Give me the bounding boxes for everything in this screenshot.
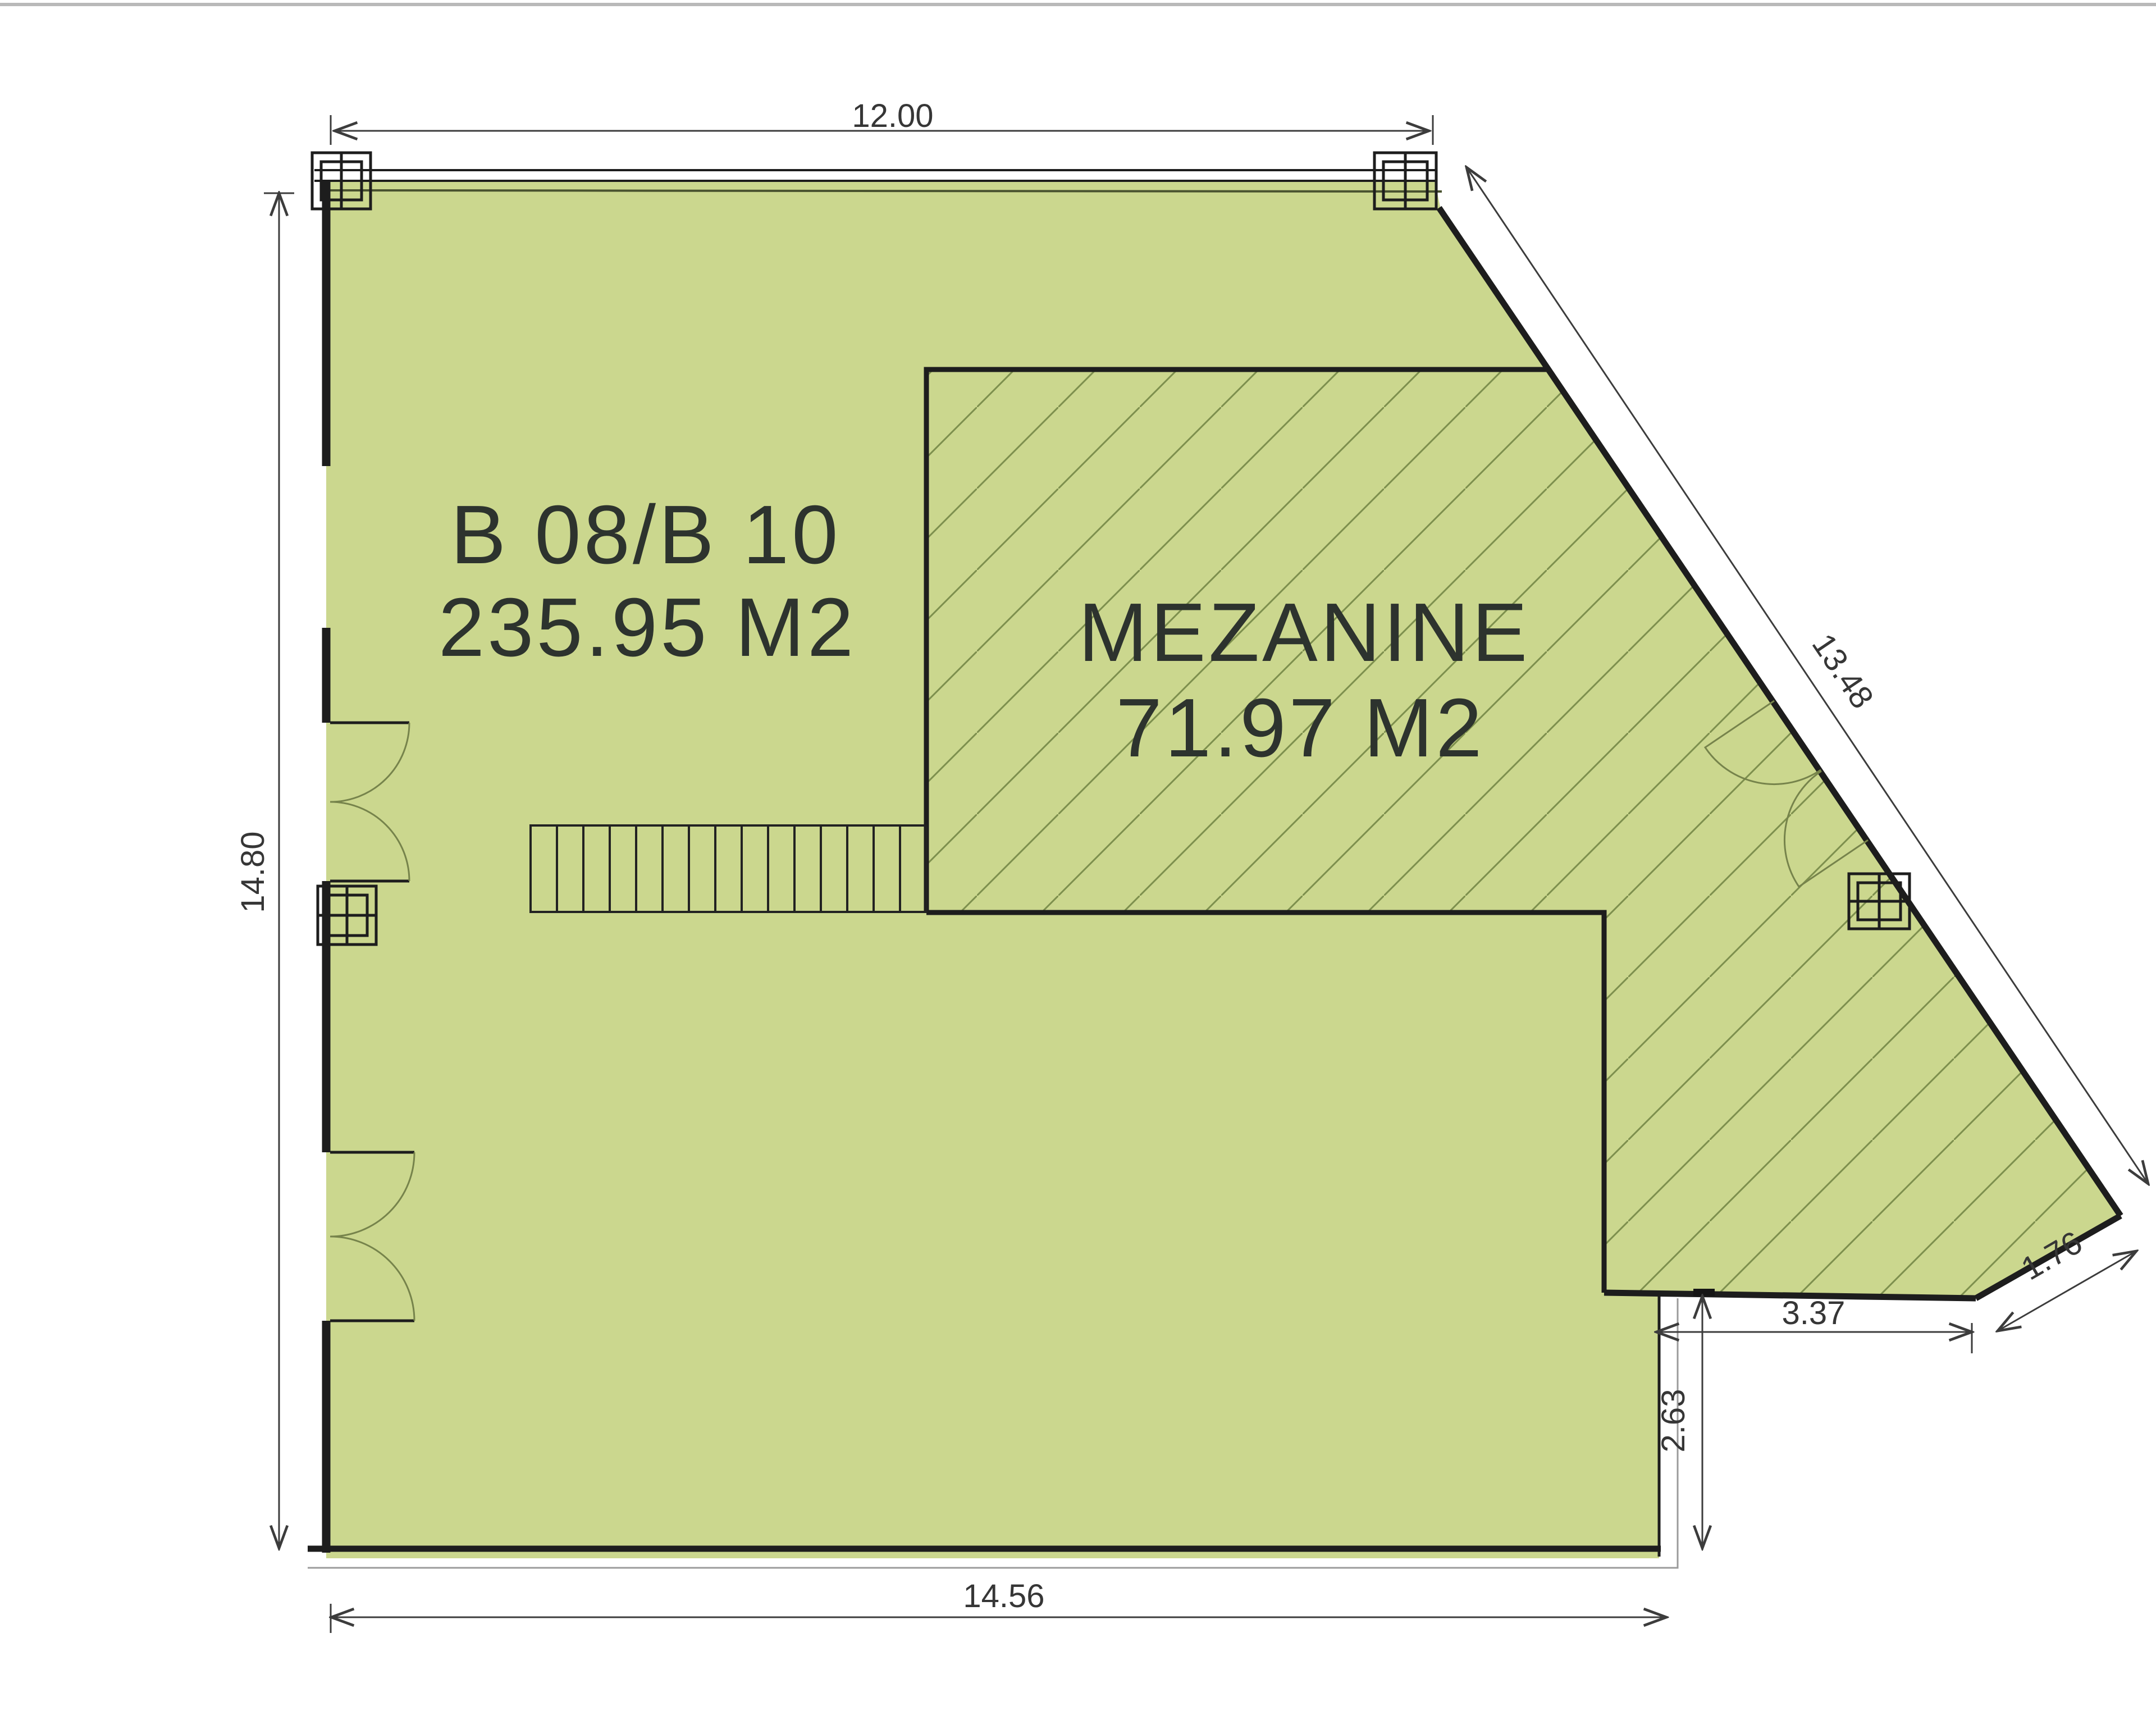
mezzanine-area-label: 71.97 M2: [1116, 682, 1484, 774]
column-top-left: [312, 153, 371, 209]
column-diagonal-wall: [1849, 874, 1910, 929]
wall-stub: [1693, 1289, 1715, 1296]
dimension-label-bottom: 14.56: [963, 1578, 1044, 1614]
unit-label: B 08/B 10: [450, 489, 841, 581]
mezzanine-label: MEZANINE: [1079, 586, 1531, 679]
dimension-label-diagonal: 13.48: [1805, 627, 1881, 715]
dimension-label-left: 14.80: [235, 831, 271, 913]
floorplan-drawing: B 08/B 10 235.95 M2 MEZANINE 71.97 M2 12…: [0, 0, 2156, 1720]
dimension-label-top: 12.00: [852, 98, 933, 134]
unit-area-label: 235.95 M2: [438, 581, 856, 674]
floorplan-page: B 08/B 10 235.95 M2 MEZANINE 71.97 M2 12…: [0, 0, 2156, 1720]
dimension-label-notch-width: 3.37: [1782, 1295, 1846, 1331]
dimension-label-notch-depth: 2.63: [1655, 1389, 1692, 1453]
top-slab-edge-line: [328, 190, 1442, 191]
column-top-right: [1374, 153, 1436, 209]
column-mid-left: [318, 886, 376, 945]
